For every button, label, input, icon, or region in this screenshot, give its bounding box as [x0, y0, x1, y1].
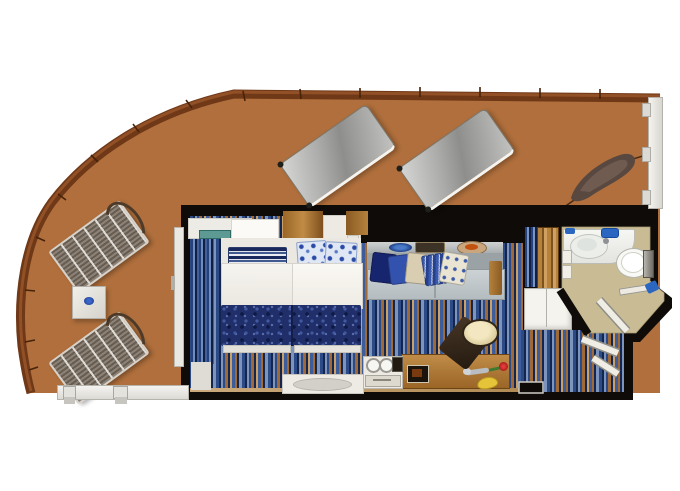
entrance-door-swing [582, 339, 618, 374]
railing-foot-1 [64, 397, 75, 404]
blue-table-dish [84, 297, 94, 305]
toiletries-small [565, 228, 575, 234]
basin-bowl [577, 238, 597, 251]
wall-shelf-2 [562, 265, 572, 279]
railing-bracket-1 [642, 103, 651, 117]
toilet-tank [643, 250, 654, 278]
railing-bracket-2 [642, 147, 651, 162]
railing-foot-2 [115, 397, 127, 404]
floor-plan [0, 0, 680, 491]
wall-shelf-1 [562, 250, 572, 264]
faucet [603, 238, 609, 244]
wall-step [519, 382, 543, 393]
toiletries-blue [601, 228, 619, 238]
toilet-seat [621, 252, 645, 273]
railing-bracket-3 [642, 190, 651, 205]
